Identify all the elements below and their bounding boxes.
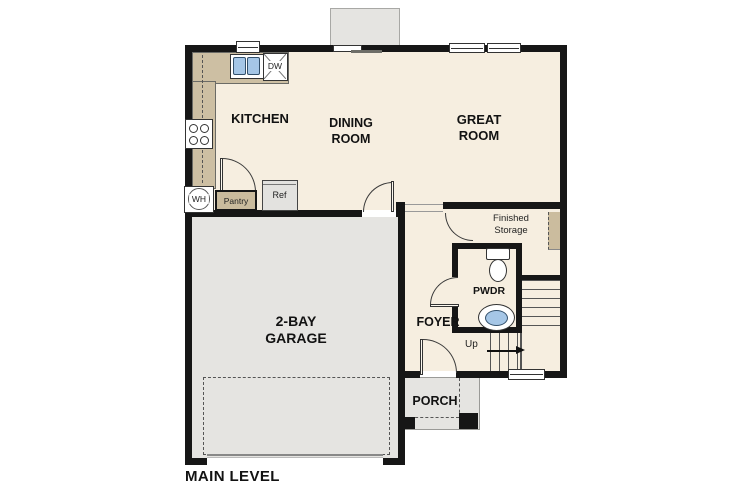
room-label-storage: Finished Storage bbox=[479, 213, 543, 236]
wall-foyer-bottom-a bbox=[398, 371, 420, 378]
wall-garage-bottom-left-stub bbox=[185, 458, 207, 465]
room-label-dining: DINING ROOM bbox=[319, 115, 383, 147]
wall-garage-left bbox=[185, 217, 192, 465]
porch-dash-horizontal bbox=[410, 417, 459, 418]
up-arrow-line bbox=[487, 350, 517, 352]
level-title: MAIN LEVEL bbox=[185, 468, 280, 485]
up-arrow-head bbox=[516, 346, 525, 354]
pwdr-sink-basin bbox=[485, 310, 508, 326]
room-label-great: GREAT ROOM bbox=[444, 112, 514, 144]
stove bbox=[185, 119, 213, 149]
dishwasher-label: DW bbox=[266, 61, 284, 71]
garage-door-line bbox=[207, 454, 383, 456]
garage-door-line2 bbox=[207, 457, 383, 458]
sink-basin-right bbox=[247, 57, 260, 75]
wall-garage-top-a bbox=[192, 210, 362, 217]
room-label-porch: PORCH bbox=[408, 394, 462, 408]
wall-garage-bottom-right-stub bbox=[383, 458, 405, 465]
kitchen-window bbox=[236, 41, 260, 53]
wall-greatroom-bottom bbox=[443, 202, 567, 209]
wall-pwdr-left-a bbox=[452, 243, 458, 277]
garage-entry-door-leaf bbox=[391, 181, 394, 212]
sink-basin-left bbox=[233, 57, 246, 75]
wall-corner-jog bbox=[396, 202, 405, 217]
pantry-label: Pantry bbox=[217, 196, 255, 206]
room-label-garage: 2-BAY GARAGE bbox=[256, 313, 336, 347]
foyer-window bbox=[508, 369, 545, 380]
refrigerator-label: Ref bbox=[263, 190, 296, 200]
wall-right bbox=[560, 45, 567, 378]
room-label-foyer: FOYER bbox=[412, 315, 464, 329]
pwdr-door-leaf bbox=[430, 304, 459, 307]
garage-door-dashed-outline bbox=[203, 377, 390, 455]
stair-upper-treads bbox=[522, 280, 560, 333]
sink-unit bbox=[230, 54, 264, 79]
room-label-pwdr: PWDR bbox=[466, 285, 512, 297]
slider-door-panel-2 bbox=[351, 50, 382, 53]
stair-break-bar bbox=[522, 275, 560, 280]
up-label: Up bbox=[465, 339, 478, 350]
cased-opening-line1 bbox=[405, 204, 443, 205]
pantry-door-leaf bbox=[220, 158, 223, 193]
porch-post-right bbox=[459, 413, 478, 429]
dishwasher: DW bbox=[263, 53, 288, 81]
front-door-leaf bbox=[420, 339, 423, 375]
wall-garage-right bbox=[398, 210, 405, 465]
great-room-window-1 bbox=[449, 43, 485, 53]
cased-opening-line2 bbox=[405, 211, 443, 212]
refrigerator: Ref bbox=[262, 180, 298, 211]
floor-plan: Up DW bbox=[0, 0, 750, 500]
pantry-box: Pantry bbox=[215, 190, 257, 211]
great-room-window-2 bbox=[487, 43, 521, 53]
wall-pwdr-right bbox=[516, 243, 522, 333]
toilet-bowl bbox=[489, 259, 507, 282]
water-heater: WH bbox=[184, 186, 214, 213]
water-heater-label: WH bbox=[189, 194, 209, 204]
room-label-kitchen: KITCHEN bbox=[224, 111, 296, 126]
refrigerator-door-line bbox=[263, 184, 296, 185]
